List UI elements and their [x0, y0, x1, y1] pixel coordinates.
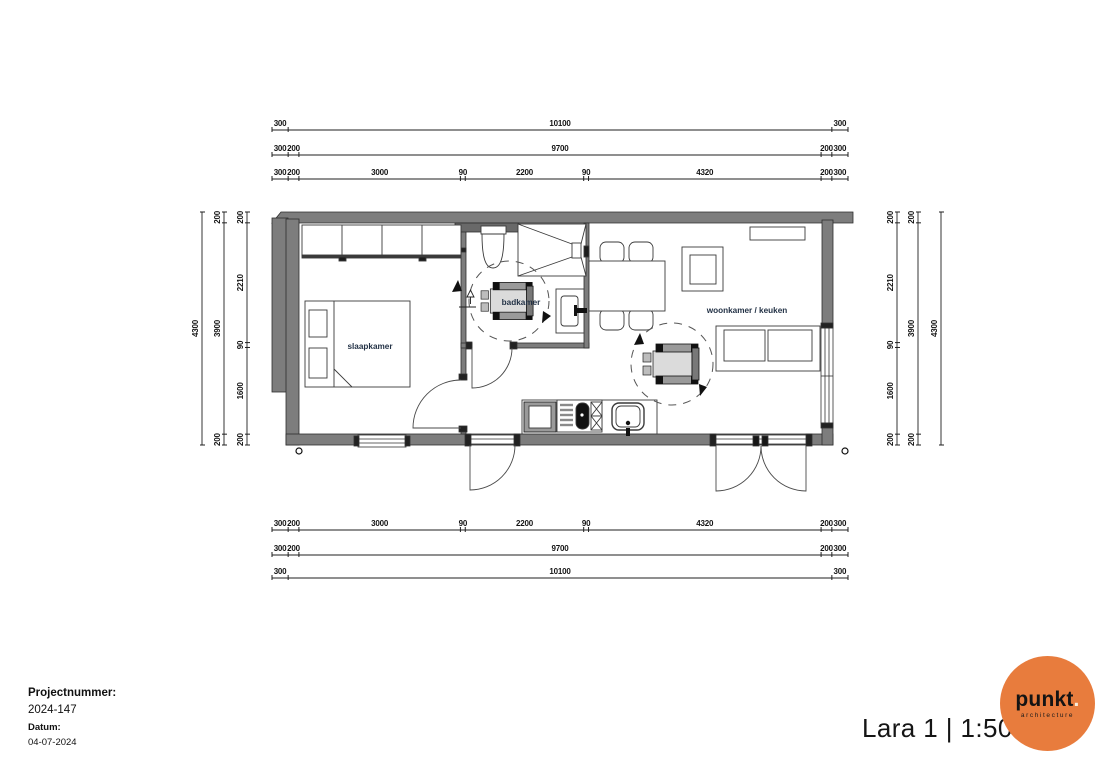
date-label: Datum: — [28, 723, 116, 733]
dimension-label: 200 — [287, 544, 300, 553]
dimension-label: 300 — [834, 168, 847, 177]
sheet-title: Lara 1 | 1:50 — [862, 713, 1013, 744]
dimension-label: 4300 — [191, 319, 200, 337]
dimension-label: 300 — [274, 168, 287, 177]
dining-set — [589, 242, 665, 330]
dimension-label: 300 — [834, 119, 847, 128]
dimension-label: 90 — [459, 519, 468, 528]
dimension-label: 2210 — [236, 273, 245, 291]
dimension-label: 1600 — [886, 382, 895, 400]
sofa — [716, 326, 820, 371]
dimension-label: 90 — [582, 168, 591, 177]
rotation-arrow — [542, 311, 551, 323]
dimension-label: 300 — [274, 519, 287, 528]
left-wall — [286, 219, 299, 445]
dimension-label: 9700 — [552, 144, 570, 153]
dimension-label: 300 — [274, 567, 287, 576]
dimension-label: 3000 — [371, 519, 389, 528]
dimension-label: 200 — [820, 144, 833, 153]
project-number-value: 2024-147 — [28, 704, 116, 717]
dimension-label: 200 — [236, 210, 245, 223]
room-label-bedroom: slaapkamer — [347, 342, 393, 351]
downspout-right — [842, 448, 848, 454]
dimension-label: 200 — [886, 210, 895, 223]
kitchen-counter — [522, 400, 657, 436]
hall-exterior-door-swing — [470, 445, 515, 490]
roof-band — [272, 212, 853, 223]
dimension-label: 2200 — [516, 519, 534, 528]
dimension-label: 200 — [236, 432, 245, 445]
dimension-label: 4320 — [696, 168, 714, 177]
dining-table — [589, 261, 665, 311]
bedroom-door-swing — [413, 380, 461, 428]
dining-chair — [600, 309, 624, 330]
dimension-label: 200 — [907, 432, 916, 445]
bathroom-bottom-wall-right — [512, 343, 589, 348]
project-info-block: Projectnummer: 2024-147 Datum: 04-07-202… — [28, 687, 116, 748]
rotation-arrow — [452, 280, 462, 292]
washbasin-icon — [556, 289, 587, 333]
right-wall-upper — [822, 220, 833, 328]
dimension-label: 300 — [834, 519, 847, 528]
logo-tagline: architecture — [1021, 712, 1074, 719]
hall-door-sill — [465, 434, 520, 446]
project-number-label: Projectnummer: — [28, 687, 116, 700]
downspout-left — [296, 448, 302, 454]
dimension-label: 10100 — [549, 119, 571, 128]
floor-plan-sheet: slaapkamer badkamer woonkamer / keuken 3… — [0, 0, 1106, 775]
dimension-label: 300 — [834, 144, 847, 153]
dimension-label: 90 — [582, 519, 591, 528]
dimension-label: 4300 — [930, 319, 939, 337]
sideboard — [750, 227, 805, 240]
dimension-label: 3900 — [907, 319, 916, 337]
room-label-bathroom: badkamer — [502, 298, 541, 307]
dimension-label: 300 — [274, 144, 287, 153]
dimension-label: 300 — [274, 544, 287, 553]
drain-marks — [296, 448, 848, 454]
fridge-icon — [524, 402, 556, 432]
logo-wordmark: punkt. — [1015, 689, 1079, 710]
dimension-label: 3000 — [371, 168, 389, 177]
dimension-label: 300 — [834, 544, 847, 553]
stove-icon — [557, 400, 602, 432]
dimension-label: 200 — [820, 519, 833, 528]
bedroom-bathroom-wall — [461, 223, 466, 344]
dimension-label: 2210 — [886, 273, 895, 291]
dimension-label: 9700 — [552, 544, 570, 553]
right-wall-window — [821, 323, 833, 428]
dimension-label: 90 — [886, 340, 895, 349]
double-door-right-swing — [761, 446, 806, 491]
dining-chair — [629, 309, 653, 330]
dimension-label: 200 — [287, 168, 300, 177]
bedroom-window — [354, 435, 410, 447]
furniture — [302, 224, 820, 436]
double-door-sill — [710, 434, 812, 446]
dimension-label: 200 — [287, 144, 300, 153]
bathroom-door-post-left — [466, 342, 472, 349]
double-door-left-swing — [716, 446, 761, 491]
dimension-label: 200 — [820, 544, 833, 553]
bedroom-door-post-top — [459, 374, 467, 380]
shower-icon — [518, 224, 589, 276]
dimension-label: 1600 — [236, 382, 245, 400]
dimension-label: 3900 — [213, 319, 222, 337]
bedroom-door-post-bottom — [459, 426, 467, 432]
dimension-label: 200 — [820, 168, 833, 177]
wheelchair-icon — [643, 344, 699, 384]
dimension-label: 2200 — [516, 168, 534, 177]
date-value: 04-07-2024 — [28, 738, 116, 748]
dining-chair — [600, 242, 624, 263]
floor-plan-drawing: slaapkamer badkamer woonkamer / keuken 3… — [0, 0, 1106, 775]
dimension-label: 90 — [459, 168, 468, 177]
dimension-label: 10100 — [549, 567, 571, 576]
punkt-logo: punkt. architecture — [1000, 656, 1095, 751]
logo-dot: . — [1074, 688, 1080, 711]
bathroom-door-swing — [472, 348, 512, 388]
dimension-label: 300 — [274, 119, 287, 128]
bathroom-door-post-right — [510, 342, 517, 349]
dimension-label: 4320 — [696, 519, 714, 528]
dimension-label: 200 — [287, 519, 300, 528]
dimension-label: 300 — [834, 567, 847, 576]
logo-brand: punkt — [1015, 688, 1073, 711]
dimension-label: 200 — [213, 210, 222, 223]
dimension-label: 90 — [236, 340, 245, 349]
rotation-arrow — [634, 333, 644, 345]
dimension-label: 200 — [907, 210, 916, 223]
armchair — [682, 247, 723, 291]
wardrobe — [302, 225, 461, 261]
dimension-label: 200 — [886, 432, 895, 445]
dining-chair — [629, 242, 653, 263]
rotation-arrow — [699, 384, 707, 396]
room-label-living: woonkamer / keuken — [706, 306, 788, 315]
dimension-label: 200 — [213, 432, 222, 445]
